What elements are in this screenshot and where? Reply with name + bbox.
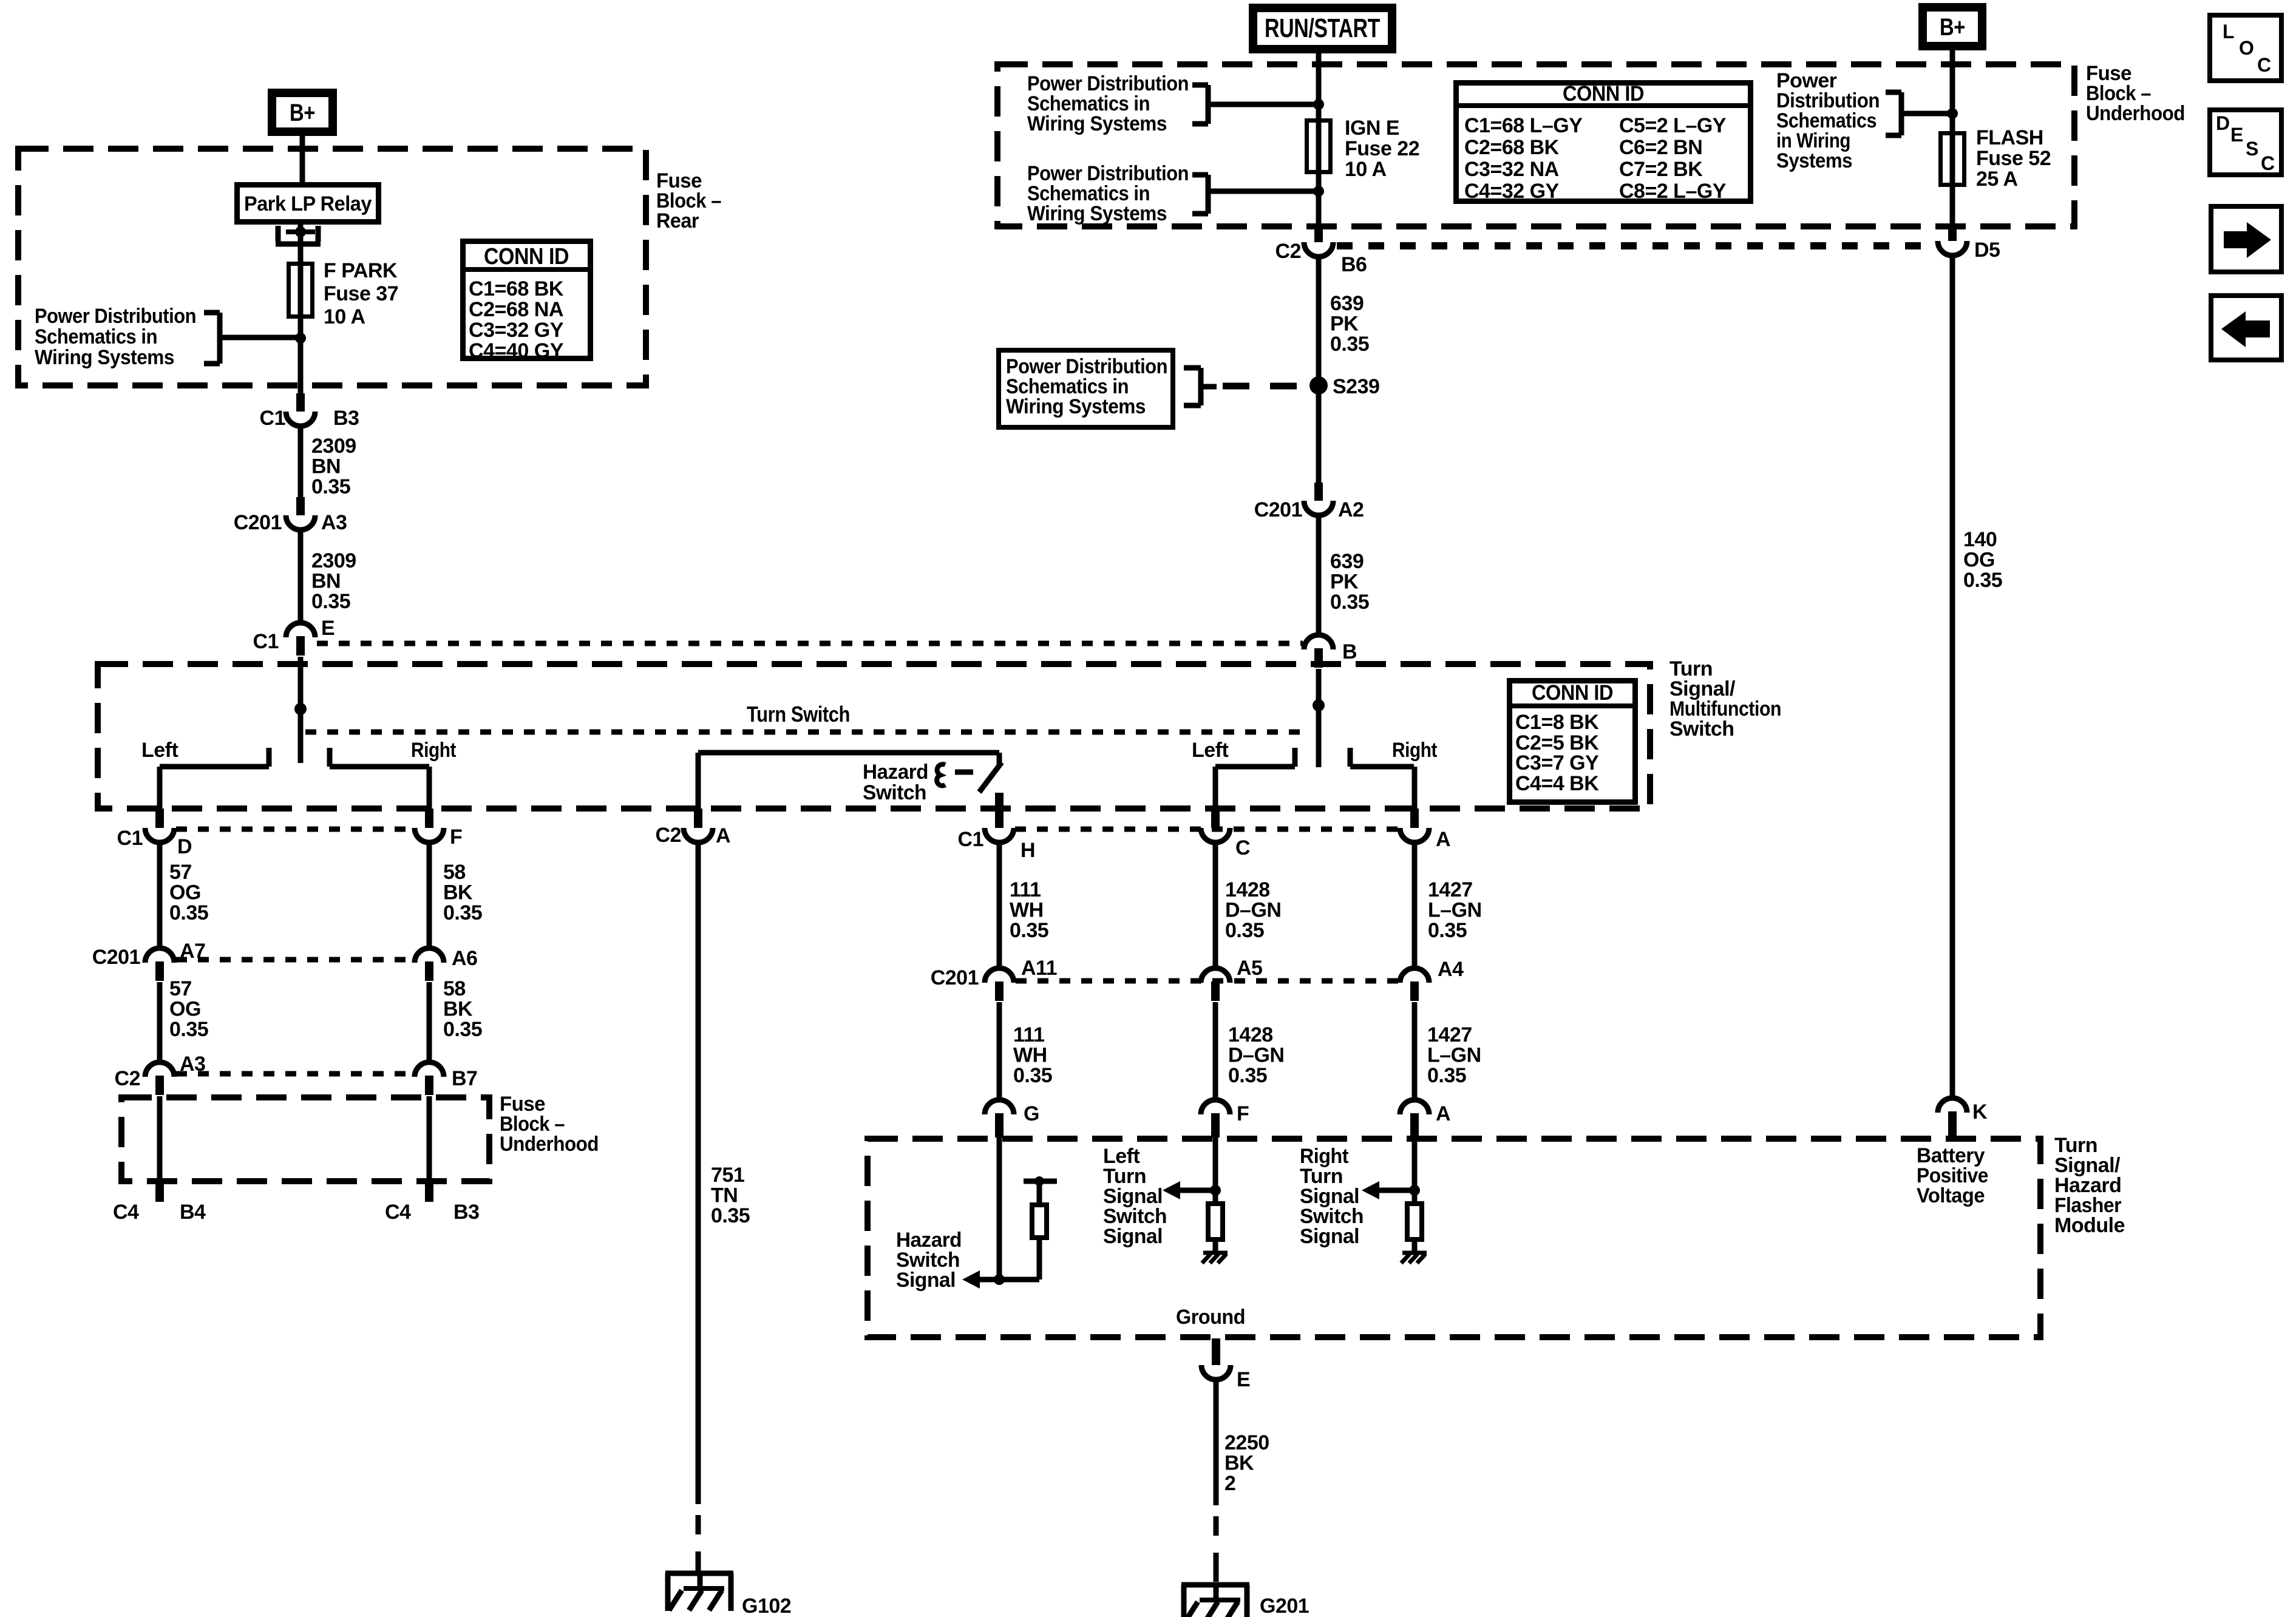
svg-text:C: C [1235, 836, 1250, 859]
svg-text:111: 111 [1010, 878, 1041, 901]
svg-text:C3=32 GY: C3=32 GY [469, 319, 564, 342]
svg-text:B+: B+ [1940, 14, 1965, 41]
svg-text:0.35: 0.35 [443, 901, 482, 924]
svg-text:C: C [2257, 54, 2271, 76]
svg-text:H: H [1021, 839, 1035, 862]
svg-text:Fuse 37: Fuse 37 [324, 282, 398, 305]
svg-text:C2: C2 [115, 1067, 140, 1090]
svg-text:C6=2 BN: C6=2 BN [1619, 136, 1702, 159]
svg-text:Left: Left [1192, 739, 1229, 762]
svg-text:G: G [1024, 1102, 1039, 1125]
svg-text:2309: 2309 [311, 435, 356, 458]
svg-text:0.35: 0.35 [169, 1018, 208, 1041]
svg-text:WH: WH [1013, 1044, 1047, 1067]
svg-text:B: B [1342, 640, 1357, 663]
svg-text:0.35: 0.35 [1330, 591, 1369, 614]
svg-text:10 A: 10 A [324, 305, 365, 328]
svg-text:111: 111 [1013, 1023, 1044, 1046]
svg-text:0.35: 0.35 [1427, 1064, 1466, 1087]
svg-text:K: K [1972, 1100, 1988, 1124]
svg-text:C4=32 GY: C4=32 GY [1464, 180, 1560, 203]
svg-text:E: E [1237, 1368, 1250, 1391]
svg-text:C5=2 L–GY: C5=2 L–GY [1619, 114, 1727, 137]
svg-text:A: A [1436, 1102, 1450, 1125]
svg-text:Hazard: Hazard [863, 761, 928, 784]
svg-text:BN: BN [311, 570, 341, 593]
svg-text:A4: A4 [1438, 958, 1464, 981]
svg-text:C201: C201 [1254, 498, 1302, 521]
svg-text:Fuse 52: Fuse 52 [1976, 147, 2051, 170]
svg-text:CONN ID: CONN ID [484, 244, 569, 269]
svg-text:C3=32 NA: C3=32 NA [1464, 158, 1559, 181]
svg-text:Left: Left [141, 739, 178, 762]
svg-text:25 A: 25 A [1976, 168, 2018, 191]
svg-text:58: 58 [443, 977, 466, 1000]
svg-text:BK: BK [1224, 1452, 1254, 1475]
svg-text:S: S [2246, 138, 2258, 160]
svg-text:Right: Right [1392, 739, 1437, 762]
svg-text:BK: BK [443, 998, 473, 1021]
svg-text:0.35: 0.35 [169, 901, 208, 924]
svg-text:L–GN: L–GN [1427, 1044, 1481, 1067]
svg-text:Rear: Rear [656, 209, 699, 232]
svg-text:C201: C201 [931, 966, 979, 989]
svg-text:1427: 1427 [1427, 1023, 1472, 1046]
svg-text:G102: G102 [742, 1595, 791, 1617]
svg-text:Underhood: Underhood [500, 1133, 599, 1156]
svg-text:D5: D5 [1974, 239, 2000, 262]
svg-text:0.35: 0.35 [711, 1204, 750, 1227]
svg-text:Power Distribution: Power Distribution [35, 305, 196, 328]
svg-text:C1: C1 [117, 827, 143, 850]
svg-text:D–GN: D–GN [1228, 1044, 1284, 1067]
svg-text:57: 57 [169, 861, 192, 884]
svg-text:Voltage: Voltage [1917, 1184, 1985, 1207]
svg-text:58: 58 [443, 861, 466, 884]
svg-text:G201: G201 [1260, 1595, 1309, 1617]
svg-text:B+: B+ [290, 100, 315, 126]
svg-text:C: C [2261, 152, 2275, 174]
svg-text:C2=68 BK: C2=68 BK [1464, 136, 1560, 159]
svg-text:F: F [1237, 1102, 1249, 1125]
svg-text:A: A [716, 824, 730, 847]
svg-text:WH: WH [1010, 899, 1044, 922]
svg-text:C1=68 L–GY: C1=68 L–GY [1464, 114, 1583, 137]
svg-text:A2: A2 [1338, 498, 1364, 521]
svg-text:1428: 1428 [1228, 1023, 1273, 1046]
svg-text:C1: C1 [253, 630, 279, 653]
svg-text:PK: PK [1330, 313, 1359, 336]
svg-text:C4: C4 [385, 1201, 411, 1224]
svg-text:751: 751 [711, 1164, 744, 1187]
svg-text:S239: S239 [1333, 375, 1379, 398]
svg-text:0.35: 0.35 [1225, 919, 1264, 942]
svg-text:140: 140 [1963, 528, 1997, 551]
svg-text:639: 639 [1330, 550, 1364, 573]
svg-text:FLASH: FLASH [1976, 126, 2043, 149]
svg-text:PK: PK [1330, 571, 1359, 594]
svg-text:RUN/START: RUN/START [1265, 13, 1380, 43]
svg-text:Schematics in: Schematics in [35, 325, 157, 348]
svg-text:639: 639 [1330, 292, 1364, 315]
svg-text:A3: A3 [321, 511, 347, 534]
svg-text:Signal: Signal [1300, 1225, 1359, 1248]
svg-text:C3=7 GY: C3=7 GY [1515, 751, 1599, 775]
svg-text:B4: B4 [180, 1201, 206, 1224]
svg-text:C4: C4 [113, 1201, 139, 1224]
svg-text:Right: Right [411, 739, 456, 762]
svg-text:Turn Switch: Turn Switch [747, 702, 850, 727]
svg-text:Fuse 22: Fuse 22 [1345, 137, 1419, 160]
svg-text:A: A [1436, 828, 1450, 851]
svg-text:Wiring Systems: Wiring Systems [35, 346, 174, 369]
svg-text:0.35: 0.35 [1428, 919, 1467, 942]
svg-text:D–GN: D–GN [1225, 899, 1281, 922]
svg-text:IGN E: IGN E [1345, 117, 1399, 140]
svg-text:C1=68 BK: C1=68 BK [469, 277, 564, 300]
svg-text:Signal: Signal [896, 1269, 956, 1292]
svg-text:A5: A5 [1237, 957, 1262, 980]
svg-text:C1: C1 [260, 407, 285, 430]
svg-text:Wiring Systems: Wiring Systems [1027, 112, 1167, 135]
svg-text:D: D [177, 835, 192, 858]
svg-text:0.35: 0.35 [311, 475, 350, 498]
svg-text:Park LP Relay: Park LP Relay [244, 192, 372, 215]
svg-text:OG: OG [169, 881, 201, 904]
svg-text:A6: A6 [452, 947, 477, 970]
svg-text:2: 2 [1224, 1472, 1235, 1495]
svg-text:Systems: Systems [1776, 149, 1852, 172]
svg-text:0.35: 0.35 [443, 1018, 482, 1041]
svg-text:B3: B3 [333, 407, 359, 430]
svg-text:OG: OG [1963, 549, 1995, 572]
svg-text:0.35: 0.35 [311, 590, 350, 613]
svg-text:Module: Module [2054, 1214, 2125, 1237]
svg-text:C2=68 NA: C2=68 NA [469, 298, 563, 321]
svg-text:2309: 2309 [311, 549, 356, 572]
svg-text:Wiring Systems: Wiring Systems [1027, 202, 1167, 225]
svg-text:BN: BN [311, 455, 341, 478]
svg-text:C1=8 BK: C1=8 BK [1515, 711, 1599, 734]
svg-text:B6: B6 [1341, 253, 1367, 276]
svg-text:C8=2 L–GY: C8=2 L–GY [1619, 180, 1727, 203]
svg-text:Switch: Switch [1669, 717, 1734, 741]
svg-text:Switch: Switch [863, 781, 926, 804]
svg-text:Underhood: Underhood [2086, 102, 2185, 125]
svg-text:D: D [2216, 112, 2230, 134]
svg-text:B3: B3 [453, 1201, 479, 1224]
svg-text:CONN ID: CONN ID [1563, 82, 1644, 106]
svg-text:C2: C2 [1275, 240, 1301, 263]
svg-text:2250: 2250 [1224, 1431, 1269, 1454]
svg-text:TN: TN [711, 1184, 738, 1207]
svg-text:Wiring Systems: Wiring Systems [1006, 395, 1146, 418]
svg-text:B7: B7 [452, 1067, 477, 1090]
svg-text:0.35: 0.35 [1228, 1064, 1267, 1087]
svg-text:0.35: 0.35 [1013, 1064, 1052, 1087]
svg-text:C201: C201 [234, 511, 282, 534]
svg-text:10 A: 10 A [1345, 158, 1387, 181]
svg-text:C1: C1 [958, 828, 983, 851]
svg-text:C7=2 BK: C7=2 BK [1619, 158, 1703, 181]
svg-text:1427: 1427 [1428, 878, 1473, 901]
svg-text:A11: A11 [1021, 957, 1057, 980]
svg-text:L: L [2223, 21, 2234, 42]
svg-text:C2: C2 [656, 824, 681, 847]
svg-text:0.35: 0.35 [1330, 333, 1369, 356]
svg-text:C201: C201 [92, 946, 140, 969]
svg-text:Ground: Ground [1176, 1306, 1245, 1329]
svg-text:1428: 1428 [1225, 878, 1270, 901]
svg-text:O: O [2239, 37, 2254, 59]
svg-text:BK: BK [443, 881, 473, 904]
svg-text:57: 57 [169, 977, 192, 1000]
svg-text:Signal: Signal [1103, 1225, 1163, 1248]
svg-text:E: E [2230, 124, 2243, 146]
svg-text:F PARK: F PARK [324, 259, 398, 282]
svg-text:L–GN: L–GN [1428, 899, 1482, 922]
svg-text:OG: OG [169, 998, 201, 1021]
svg-text:CONN ID: CONN ID [1532, 681, 1613, 705]
svg-text:0.35: 0.35 [1963, 569, 2002, 592]
svg-text:C4=40 GY: C4=40 GY [469, 339, 564, 362]
svg-text:0.35: 0.35 [1010, 919, 1048, 942]
svg-text:C4=4 BK: C4=4 BK [1515, 772, 1599, 795]
svg-text:F: F [450, 825, 462, 849]
svg-text:E: E [321, 617, 335, 640]
